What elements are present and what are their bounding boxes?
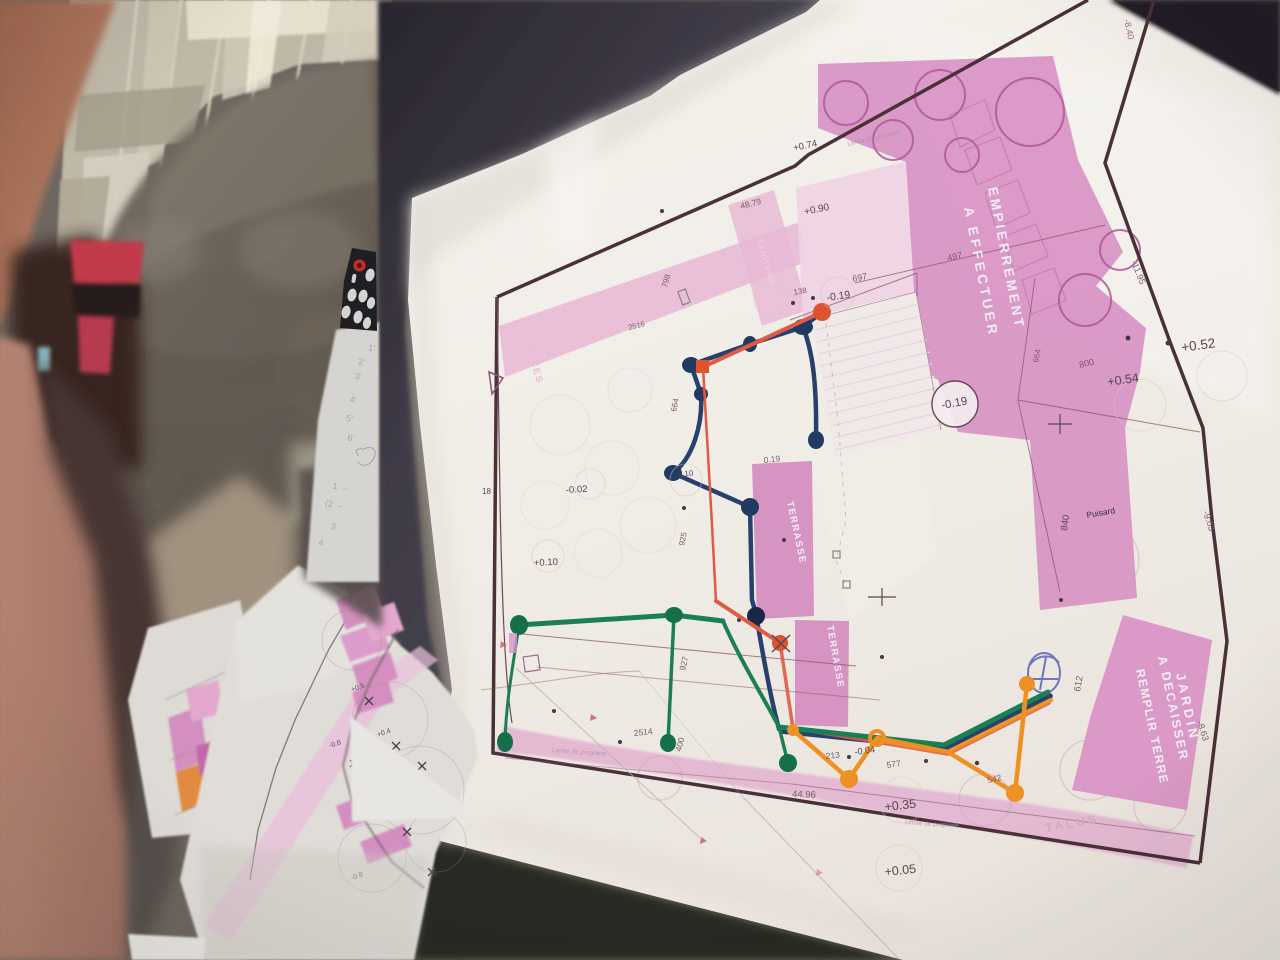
svg-text:577: 577 [886,758,902,770]
svg-text:-0.02: -0.02 [566,484,588,496]
svg-text:840: 840 [1059,514,1072,531]
svg-text:44.96: 44.96 [792,789,816,801]
svg-text:+0.10: +0.10 [534,557,559,569]
svg-text:0.10: 0.10 [677,469,694,479]
svg-text:213: 213 [825,750,840,761]
svg-text:2514: 2514 [633,726,653,738]
svg-text:18: 18 [482,487,491,496]
svg-text:0.19: 0.19 [763,453,781,465]
